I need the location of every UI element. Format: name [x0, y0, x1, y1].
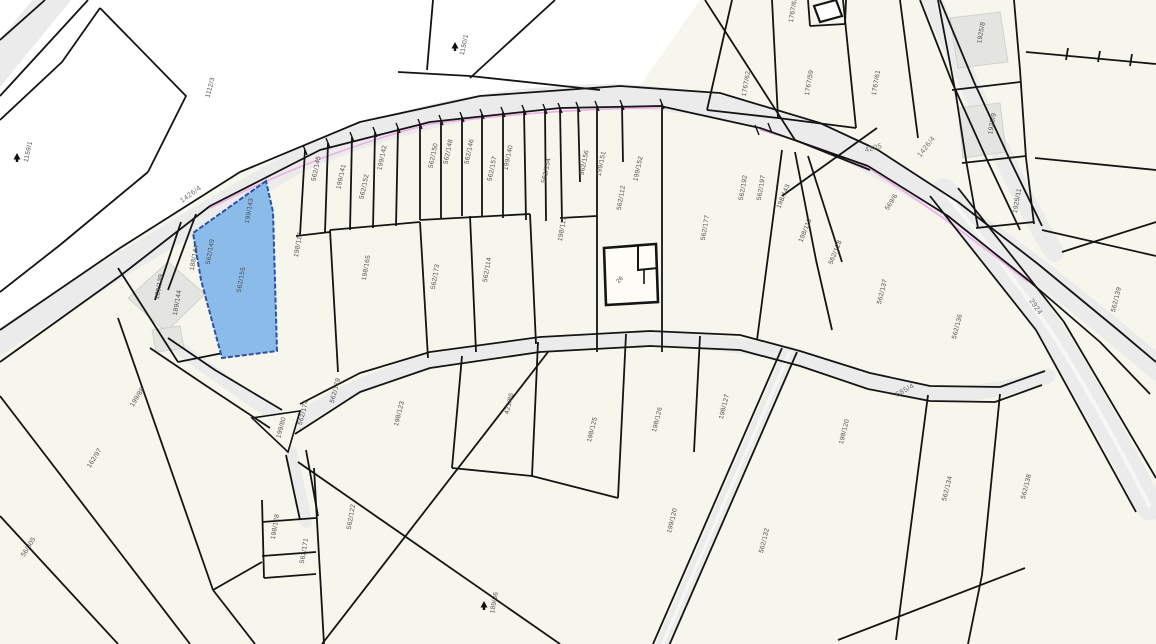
- parcel-boundary: [622, 105, 623, 162]
- map-viewport: 1159/11112/31150/1199/143188/144562/1495…: [0, 0, 1156, 644]
- cadastral-map[interactable]: 1159/11112/31150/1199/143188/144562/1495…: [0, 0, 1156, 644]
- parcel-boundary: [845, 0, 846, 24]
- building-footprint: [604, 244, 658, 305]
